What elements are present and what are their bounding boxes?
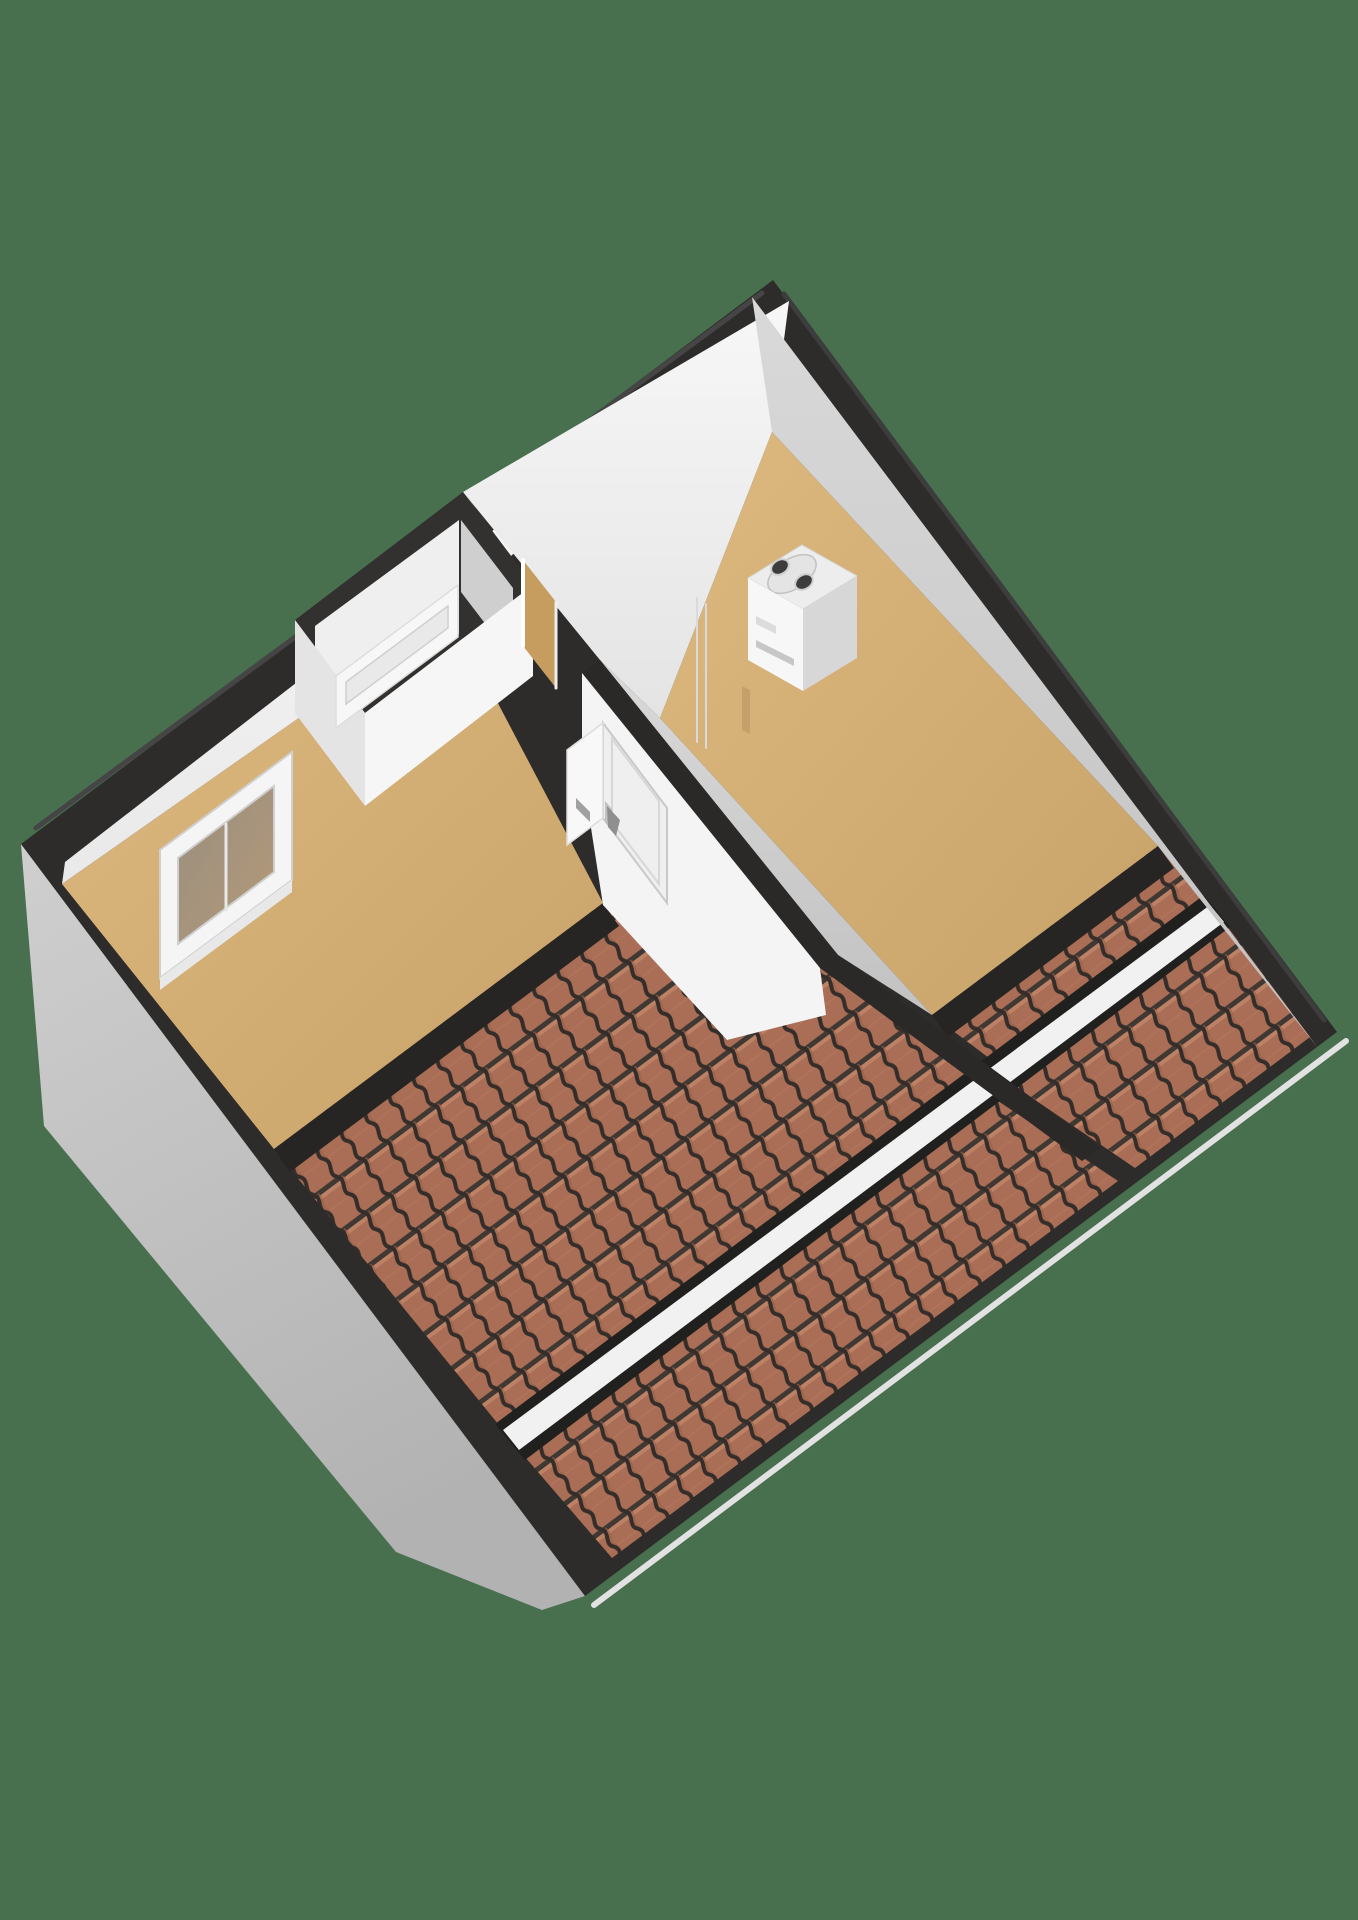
attic-floorplan-3d: [0, 0, 1358, 1920]
boiler-pipe: [742, 686, 750, 734]
floorplan-render-stage: [0, 0, 1358, 1920]
